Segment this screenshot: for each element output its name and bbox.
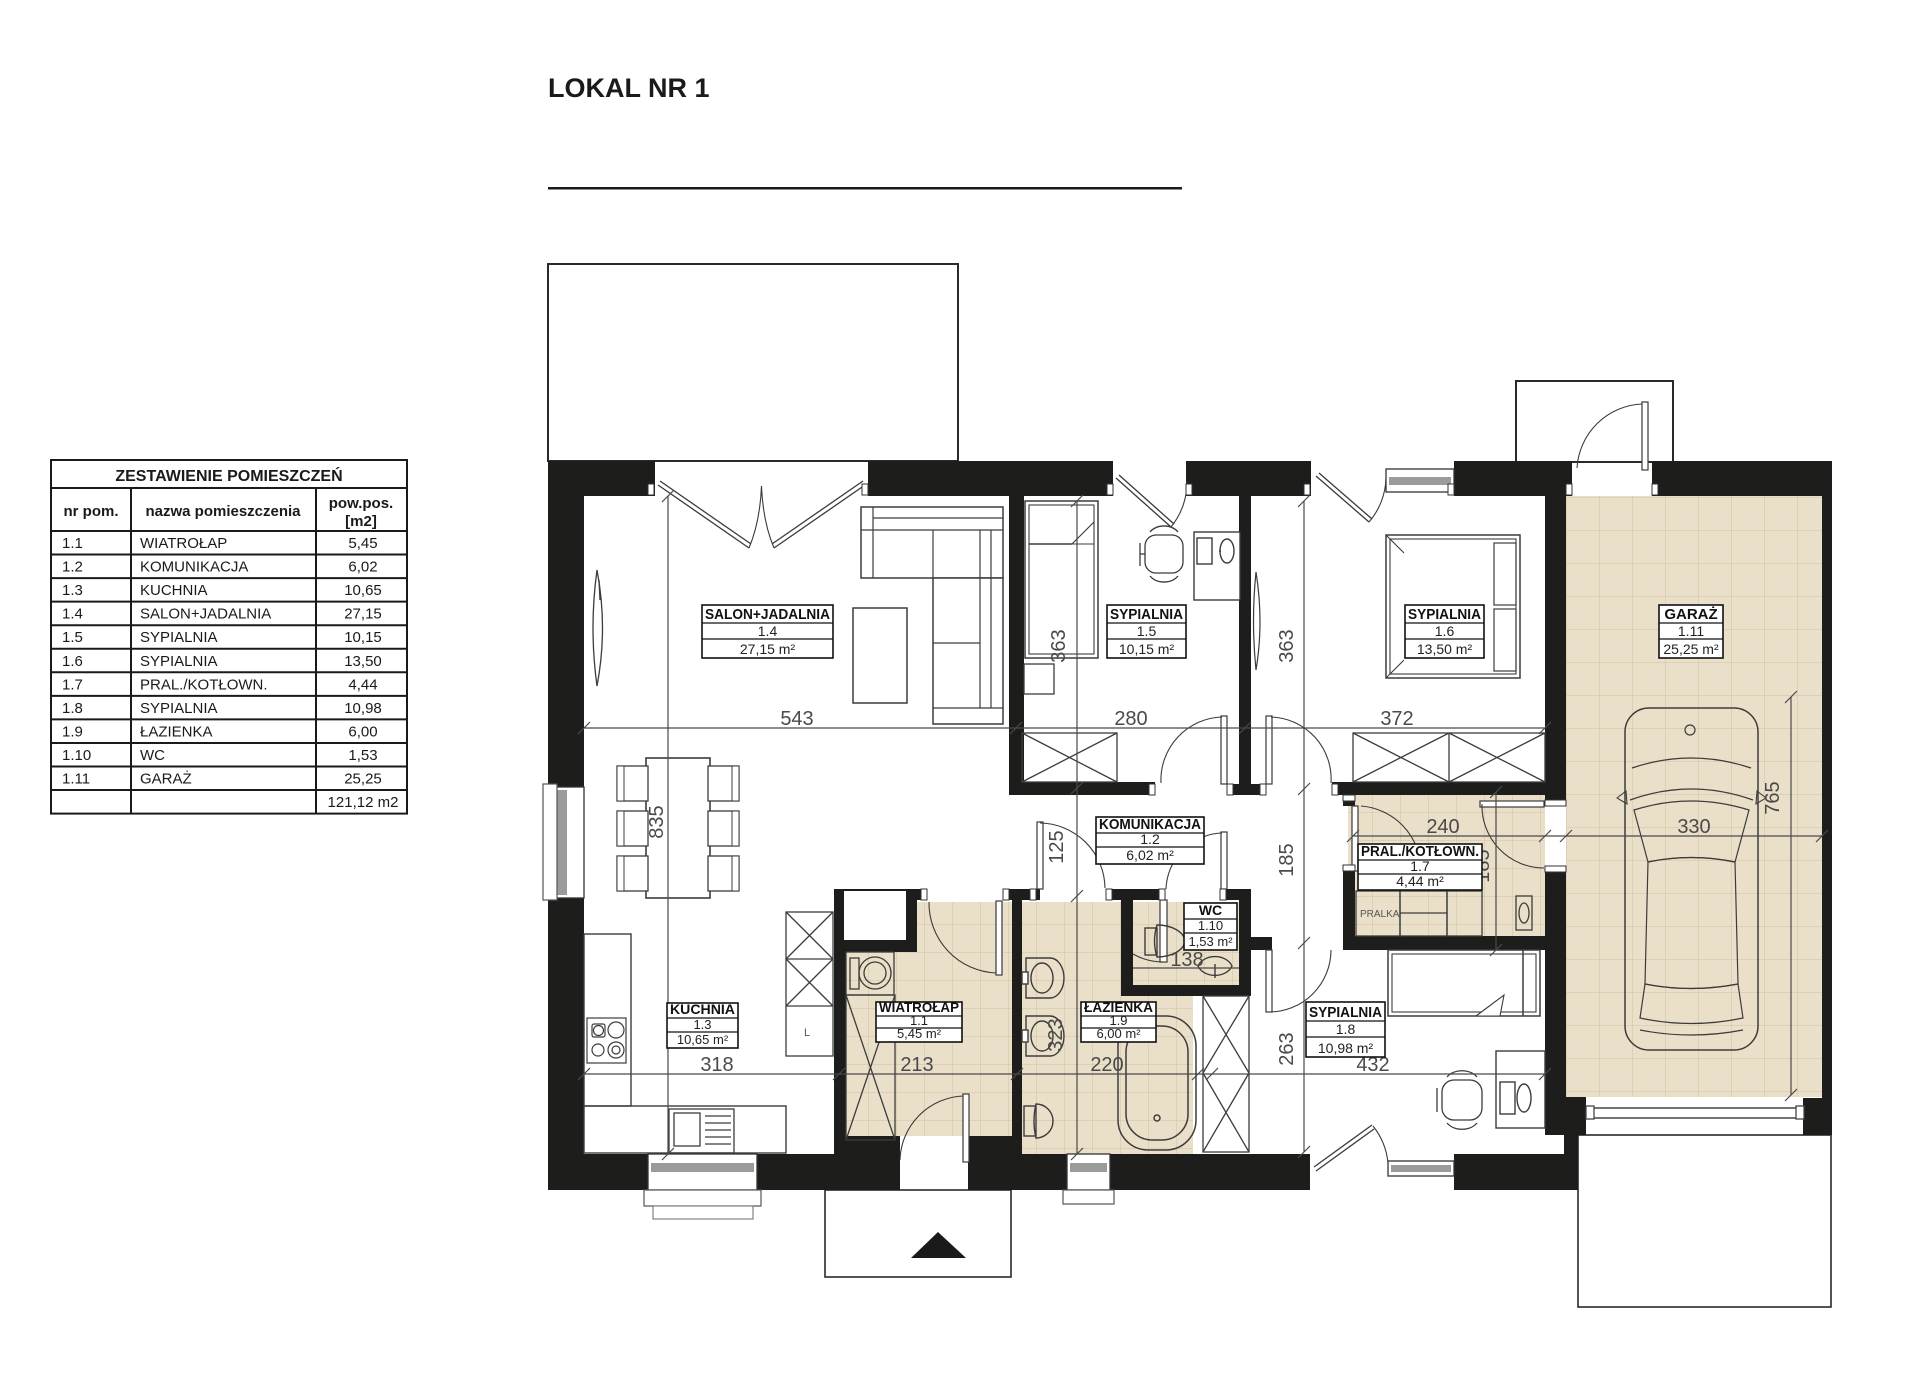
svg-text:1.7: 1.7 (62, 676, 83, 693)
svg-text:213: 213 (900, 1054, 933, 1076)
svg-text:138: 138 (1170, 949, 1203, 971)
svg-text:1.5: 1.5 (62, 629, 83, 646)
svg-text:363: 363 (1048, 629, 1070, 662)
svg-text:6,02: 6,02 (348, 559, 377, 576)
svg-text:KUCHNIA: KUCHNIA (140, 582, 208, 599)
svg-text:SALON+JADALNIA: SALON+JADALNIA (140, 606, 271, 623)
svg-text:1.4: 1.4 (62, 606, 83, 623)
svg-text:765: 765 (1762, 781, 1784, 814)
svg-text:SYPIALNIA: SYPIALNIA (1110, 606, 1183, 623)
svg-text:1.11: 1.11 (1678, 623, 1704, 639)
svg-text:nr pom.: nr pom. (64, 503, 119, 520)
svg-text:1.4: 1.4 (758, 623, 778, 639)
svg-text:10,98: 10,98 (344, 700, 382, 717)
svg-text:318: 318 (700, 1054, 733, 1076)
svg-text:1.5: 1.5 (1137, 623, 1157, 639)
svg-text:5,45: 5,45 (348, 535, 377, 552)
svg-text:pow.pos.: pow.pos. (329, 495, 393, 512)
svg-text:GARAŻ: GARAŻ (1664, 606, 1717, 623)
svg-text:WC: WC (1199, 902, 1222, 918)
svg-text:KUCHNIA: KUCHNIA (670, 1001, 735, 1017)
svg-text:1.2: 1.2 (1140, 831, 1160, 847)
svg-text:LOKAL NR 1: LOKAL NR 1 (548, 73, 710, 103)
svg-text:543: 543 (780, 708, 813, 730)
svg-text:ŁAZIENKA: ŁAZIENKA (140, 723, 213, 740)
svg-text:10,15: 10,15 (344, 629, 382, 646)
svg-text:SYPIALNIA: SYPIALNIA (1309, 1004, 1382, 1021)
svg-text:220: 220 (1090, 1054, 1123, 1076)
svg-text:10,98 m²: 10,98 m² (1318, 1040, 1374, 1056)
svg-text:1.9: 1.9 (62, 723, 83, 740)
svg-text:27,15: 27,15 (344, 606, 382, 623)
svg-text:6,00 m²: 6,00 m² (1096, 1026, 1141, 1041)
svg-text:27,15 m²: 27,15 m² (740, 641, 796, 657)
svg-text:6,02 m²: 6,02 m² (1126, 847, 1174, 863)
svg-text:263: 263 (1276, 1032, 1298, 1065)
svg-text:1.8: 1.8 (62, 700, 83, 717)
svg-text:240: 240 (1426, 816, 1459, 838)
svg-text:ZESTAWIENIE POMIESZCZEŃ: ZESTAWIENIE POMIESZCZEŃ (115, 466, 342, 485)
svg-text:GARAŻ: GARAŻ (140, 770, 192, 788)
svg-text:1,53 m²: 1,53 m² (1188, 934, 1233, 949)
svg-text:PRALKA: PRALKA (1360, 909, 1400, 920)
svg-text:1.2: 1.2 (62, 559, 83, 576)
svg-text:1.8: 1.8 (1336, 1021, 1356, 1037)
svg-text:1.3: 1.3 (693, 1017, 711, 1032)
svg-text:1,53: 1,53 (348, 747, 377, 764)
svg-text:1.10: 1.10 (1198, 918, 1223, 933)
svg-text:1.1: 1.1 (62, 535, 83, 552)
svg-text:363: 363 (1276, 629, 1298, 662)
svg-text:[m2]: [m2] (345, 513, 377, 530)
svg-text:SYPIALNIA: SYPIALNIA (140, 700, 218, 717)
svg-text:13,50 m²: 13,50 m² (1417, 641, 1473, 657)
svg-text:4,44 m²: 4,44 m² (1396, 873, 1444, 889)
svg-text:SYPIALNIA: SYPIALNIA (1408, 606, 1481, 623)
svg-text:13,50: 13,50 (344, 653, 382, 670)
svg-text:323: 323 (1045, 1018, 1067, 1051)
svg-text:25,25 m²: 25,25 m² (1663, 641, 1719, 657)
svg-text:1.6: 1.6 (62, 653, 83, 670)
svg-text:10,15 m²: 10,15 m² (1119, 641, 1175, 657)
svg-text:372: 372 (1380, 708, 1413, 730)
svg-text:1.7: 1.7 (1410, 858, 1430, 874)
svg-text:SALON+JADALNIA: SALON+JADALNIA (705, 606, 830, 623)
svg-text:1.11: 1.11 (62, 771, 90, 788)
svg-text:185: 185 (1276, 843, 1298, 876)
svg-text:330: 330 (1677, 816, 1710, 838)
svg-text:5,45 m²: 5,45 m² (897, 1026, 942, 1041)
svg-text:121,12 m2: 121,12 m2 (328, 794, 399, 811)
svg-text:4,44: 4,44 (348, 676, 377, 693)
svg-text:10,65 m²: 10,65 m² (677, 1032, 729, 1047)
svg-text:L: L (804, 1027, 810, 1039)
svg-text:SYPIALNIA: SYPIALNIA (140, 629, 218, 646)
svg-text:10,65: 10,65 (344, 582, 382, 599)
svg-text:SYPIALNIA: SYPIALNIA (140, 653, 218, 670)
svg-text:1.3: 1.3 (62, 582, 83, 599)
svg-text:WIATROŁAP: WIATROŁAP (140, 535, 227, 552)
svg-text:25,25: 25,25 (344, 771, 382, 788)
svg-text:6,00: 6,00 (348, 723, 377, 740)
svg-text:WC: WC (140, 747, 165, 764)
svg-text:280: 280 (1114, 708, 1147, 730)
svg-text:KOMUNIKACJA: KOMUNIKACJA (140, 559, 248, 576)
svg-text:1.10: 1.10 (62, 747, 91, 764)
svg-text:1.6: 1.6 (1435, 623, 1455, 639)
svg-text:125: 125 (1046, 830, 1068, 863)
svg-text:835: 835 (646, 805, 668, 838)
svg-text:PRAL./KOTŁOWN.: PRAL./KOTŁOWN. (140, 676, 268, 693)
svg-text:nazwa pomieszczenia: nazwa pomieszczenia (145, 503, 301, 520)
